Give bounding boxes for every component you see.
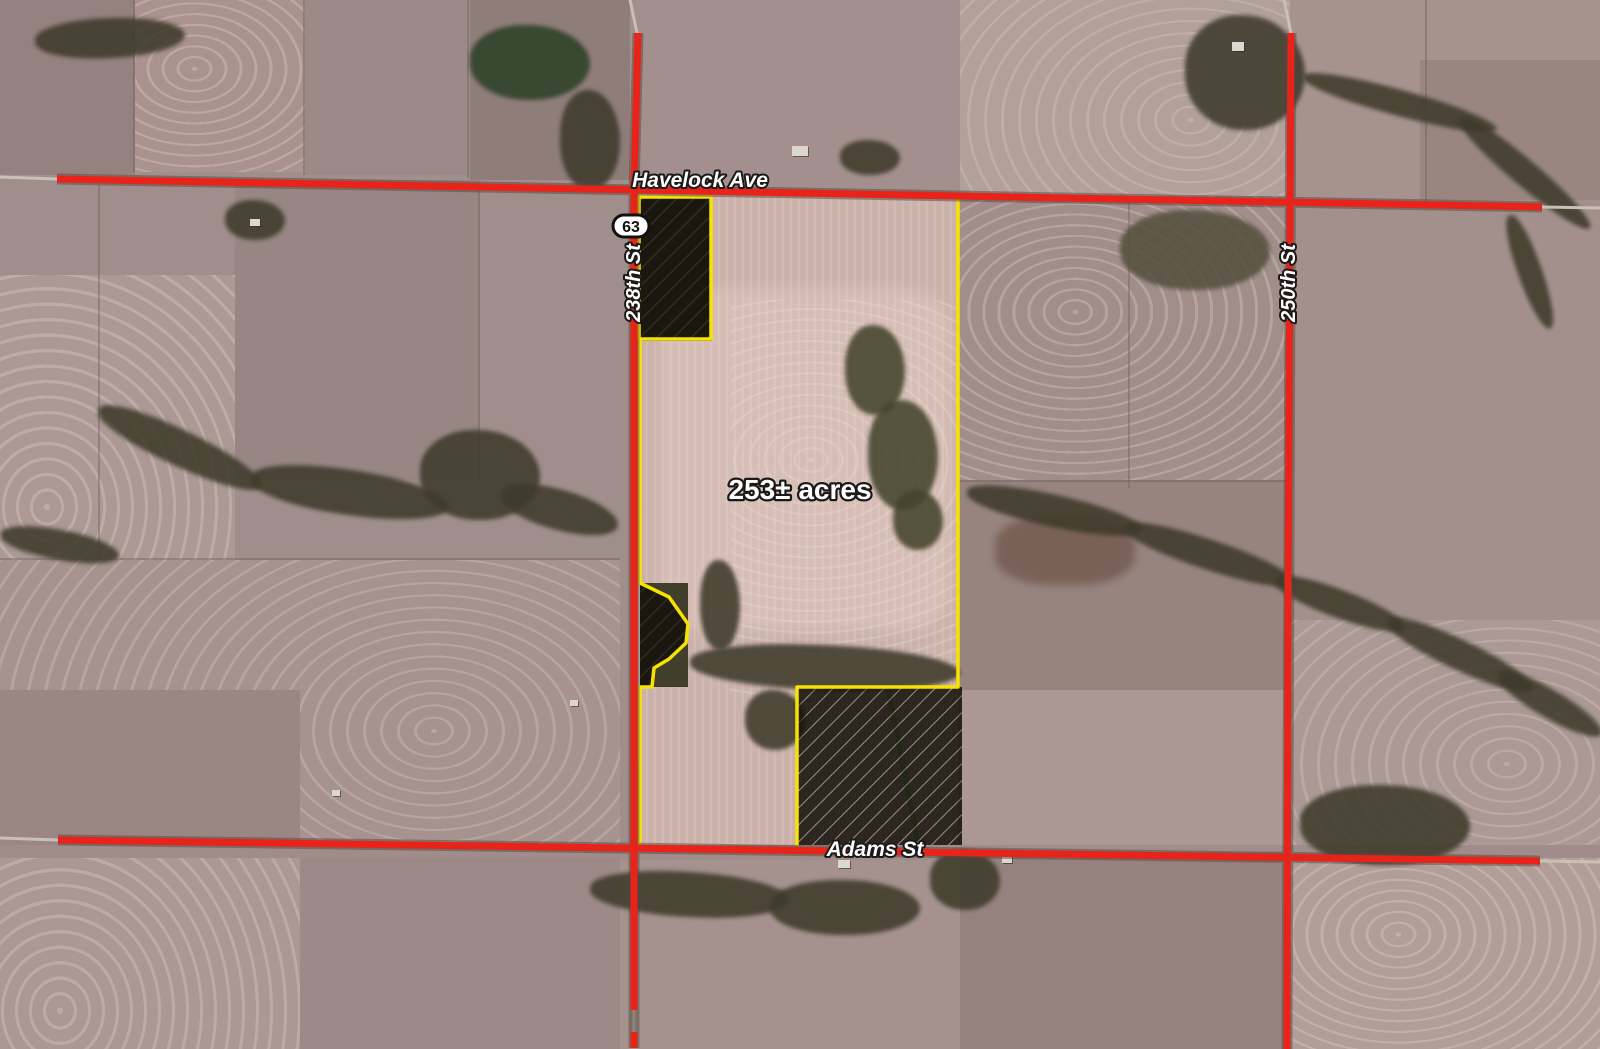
road-label-238th-st: 238th St	[623, 243, 645, 323]
road-havelock-ave	[57, 179, 1542, 207]
excluded-area-north	[639, 197, 711, 339]
road-label-havelock-ave: Havelock Ave	[632, 169, 768, 192]
gray-road-stubs	[0, 0, 1600, 1032]
excluded-area-west-pocket	[640, 583, 688, 687]
highlighted-roads	[57, 33, 1542, 1049]
road-label-adams-st: Adams St	[826, 838, 925, 861]
shield-number: 63	[622, 219, 640, 236]
aerial-map: 63 Havelock Ave Adams St 238th St 250th …	[0, 0, 1600, 1049]
map-overlay: 63 Havelock Ave Adams St 238th St 250th …	[0, 0, 1600, 1049]
acreage-label: 253± acres	[728, 474, 871, 505]
road-label-250th-st: 250th St	[1278, 243, 1300, 323]
road-250th-st	[1287, 33, 1291, 1049]
excluded-area-south	[797, 687, 962, 845]
highway-63-shield: 63	[613, 215, 649, 237]
